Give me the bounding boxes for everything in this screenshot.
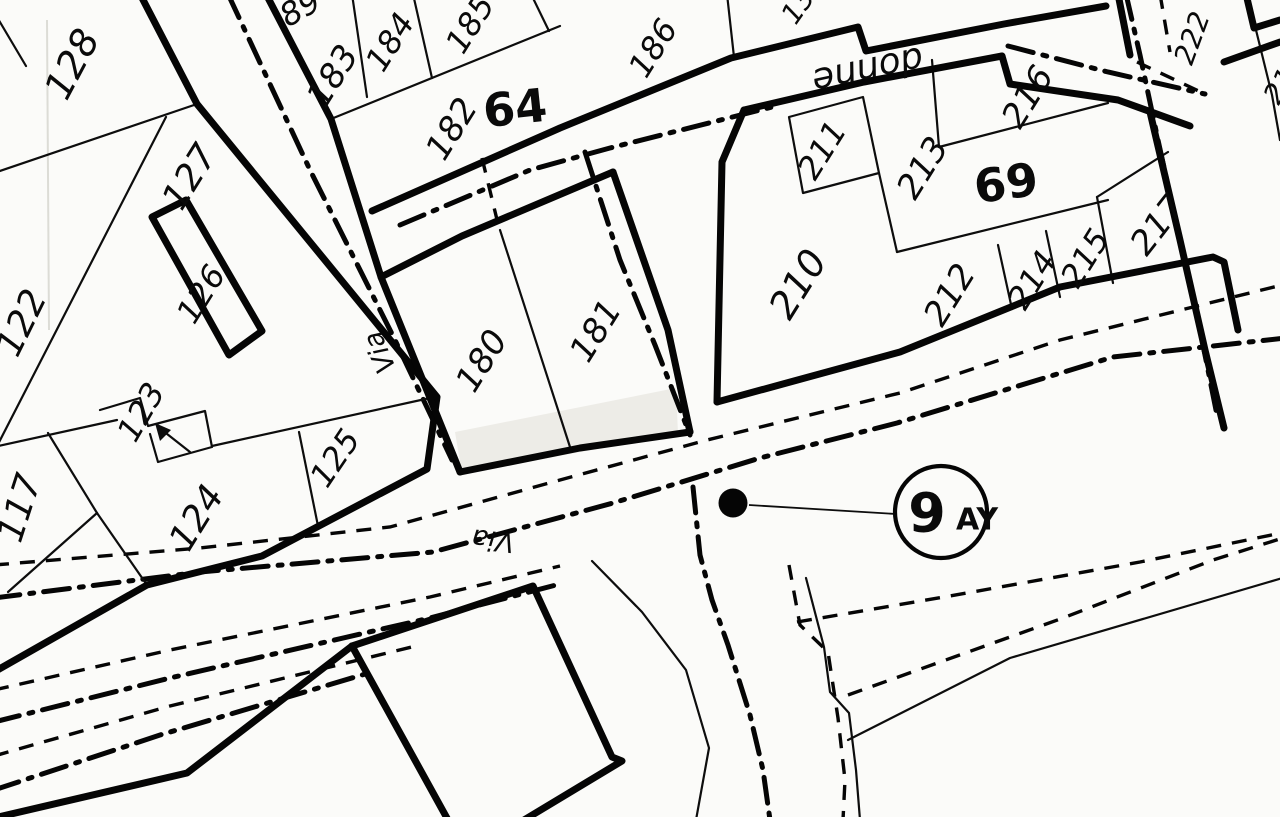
label-parcel-127: 127 (154, 137, 225, 217)
label-parcel-181: 181 (562, 293, 630, 369)
label-parcel-183: 183 (299, 38, 367, 114)
boundary-217-north (1097, 152, 1168, 197)
boundary-dashed-southeast-1 (797, 532, 1280, 622)
label-street-via-northwest: Via (357, 326, 402, 377)
boundary-dashed-topright-2 (1160, 0, 1170, 52)
boundary-128-122 (0, 104, 197, 173)
boundary-125-north (212, 398, 430, 446)
arrow-123-head (155, 423, 171, 441)
label-marker-number: 9 (908, 482, 946, 545)
label-marker-suffix: AY (956, 503, 999, 538)
label-block-64: 64 (480, 78, 549, 138)
point-marker-group (719, 466, 988, 558)
boundary-122-123 (0, 420, 117, 447)
label-street-via-southwest: Via (470, 522, 516, 557)
label-parcel-117: 117 (0, 469, 50, 547)
boundary-roadsouth-west (592, 561, 709, 817)
label-parcel-185: 185 (438, 0, 503, 60)
wall-block69-west (717, 110, 744, 402)
road-main-centerline (0, 338, 1280, 598)
label-parcel-180: 180 (448, 323, 516, 399)
wall-topright-corner-1 (1246, 0, 1280, 28)
label-block-69: 69 (971, 152, 1042, 214)
wall-topright-corner-2 (1224, 42, 1280, 62)
boundary-184-185 (413, 0, 432, 78)
wall-block180-west (381, 277, 460, 472)
boundary-dashed-vertical-south (789, 565, 845, 817)
boundary-180-181 (500, 230, 570, 447)
label-parcel-184: 184 (358, 6, 423, 78)
cadastral-map-page: 1281271261221231171241251831841851826418… (0, 0, 1280, 817)
label-parcel-186: 186 (621, 12, 686, 84)
boundary-dashed-southeast-2 (848, 537, 1280, 695)
label-parcel-213: 213 (889, 130, 957, 206)
label-partial-parcel-21: 21 (1257, 62, 1280, 110)
boundary-213-216 (932, 60, 939, 147)
marker-leader-line (749, 505, 896, 514)
label-partial-parcel-13: 13 (774, 0, 821, 30)
road-middle-centerline (585, 152, 690, 435)
building-south-west-wall (352, 646, 448, 817)
label-parcel-210: 210 (760, 242, 836, 327)
building-south (352, 586, 622, 817)
label-parcel-124: 124 (161, 478, 232, 558)
boundary-117-north (48, 433, 97, 513)
junction-dot (719, 489, 748, 518)
label-parcel-125: 125 (302, 422, 368, 494)
label-parcel-122: 122 (0, 283, 55, 363)
boundary-186-east (727, 0, 734, 57)
labels-layer: 1281271261221231171241251831841851826418… (0, 0, 1280, 558)
label-parcel-222: 222 (1167, 7, 1216, 69)
boundary-117-124 (97, 513, 147, 585)
label-parcel-182: 182 (418, 91, 486, 167)
cadastral-map-canvas: 1281271261221231171241251831841851826418… (0, 0, 1280, 817)
boundary-185-east (531, 0, 549, 31)
